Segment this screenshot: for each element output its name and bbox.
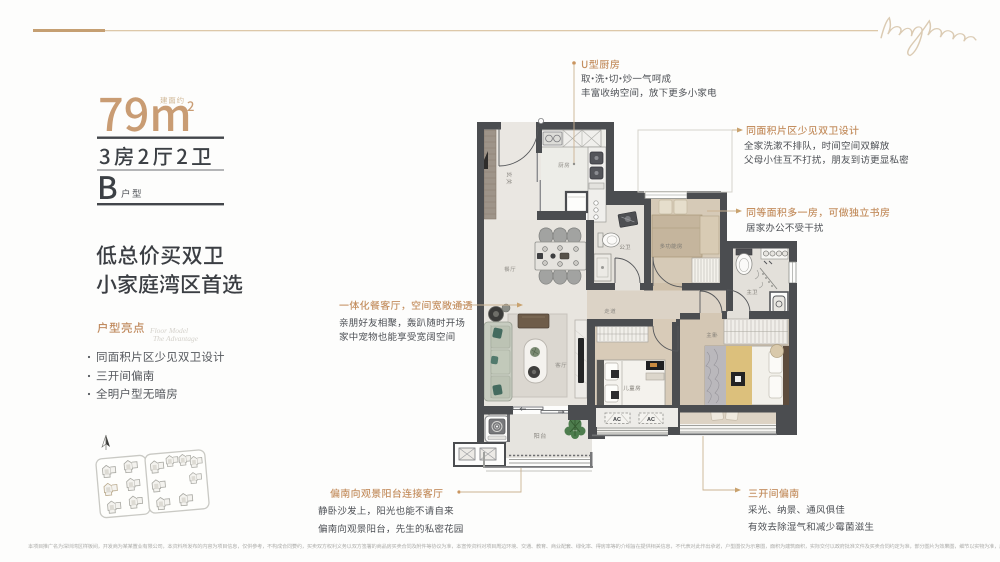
svg-text:AC: AC (647, 417, 655, 423)
svg-text:The Advantage: The Advantage (153, 334, 199, 343)
svg-text:AC: AC (613, 417, 621, 423)
